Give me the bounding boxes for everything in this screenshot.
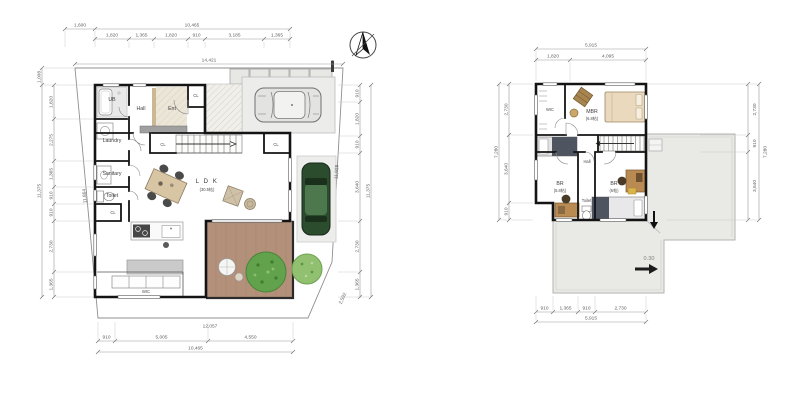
room-label-closet-south: CL [110,210,116,215]
dim-right-sub: 3,640 [355,181,361,193]
dim-left-total: 11,375 [37,184,43,199]
dim-right-sub: 910 [355,89,361,97]
dim2-top-sub: 4,095 [602,54,614,60]
dim-site-bottom: 12,057 [203,324,218,330]
dim-left-offset: 1,008 [37,71,43,83]
floor-plan-canvas: UB Hall Ent CL Laundry Sanitary Toilet C… [0,0,800,410]
dim-left-sub: 2,275 [49,134,55,146]
dim-slant-left: 11,864 [81,188,88,203]
dim-right-sub: 910 [355,140,361,148]
car-green [302,163,330,235]
room-label-ent: Ent [168,106,176,112]
dim2-bottom-sub: 2,730 [614,306,626,312]
dim-left-sub: 1,365 [49,278,55,290]
dim-left-sub: 1,820 [49,96,55,108]
room-label-toilet-2f: Toilet [582,198,592,203]
toilet-2f [582,206,591,220]
desk-br1 [555,195,579,217]
room-label-ub: UB [108,97,116,103]
dim2-bottom-sub: 910 [582,306,590,312]
dim2-right-total: 7,280 [763,146,769,158]
dim-bottom-sub: 4,550 [244,335,256,341]
bed-br2 [592,197,645,219]
bed-mbr [605,92,645,122]
room-label-hall-2f: Hall [583,159,590,164]
dim-top-sub: 1,365 [135,33,147,39]
room-label-wic-2f: WIC [546,107,554,112]
dim-left-sub: 910 [49,208,55,216]
dim-top-offset: 1,600 [74,23,86,29]
dim2-bottom-sub: 910 [540,306,548,312]
entrance-step [152,88,156,130]
room-label-br2-size: (6帖) [609,187,619,193]
dim-left-sub: 1,365 [49,168,55,180]
desk-br2 [618,170,645,194]
dresser-mbr [573,87,592,106]
room-label-br2: BR [610,181,617,187]
utility-pole-icon [331,60,334,72]
north-arrow-icon [350,32,376,58]
dim-bottom-sub: 910 [102,335,110,341]
room-label-mbr-size: (6.8帖) [586,115,599,121]
stairs-1f [176,135,242,153]
room-label-closet-stair-left: CL [160,142,166,147]
washing-machine [97,123,113,139]
dim2-bottom-total: 5,915 [585,316,597,322]
tree-small [292,254,322,284]
dim-bottom-total: 10,465 [188,346,203,352]
dim-site-top: 14,421 [202,58,217,64]
dim-top-total: 10,465 [185,23,200,29]
dim-slant-right: 11,928 [334,164,341,179]
dim2-right-sub: 3,640 [752,180,758,192]
room-label-closet-stair-right: CL [273,142,279,147]
room-label-laundry: Laundry [103,138,122,144]
dim-top-sub: 3,185 [228,33,240,39]
dim2-right-sub: 910 [752,139,758,147]
car-carport [255,88,321,122]
approach-tiles [206,84,242,133]
overhang-strip [140,126,187,133]
stairs-2f [596,136,645,151]
dim2-top-total: 5,915 [585,43,597,49]
room-label-ldk-size: (30.5帖) [200,186,215,192]
dim-top-sub: 1,820 [165,33,177,39]
room-label-br1-size: (5.8帖) [554,187,567,193]
dim-right-sub: 1,365 [355,278,361,290]
dim-top-sub: 1,820 [106,33,118,39]
dim2-left-sub: 2,730 [504,103,510,115]
dim-right-sub: 2,730 [355,240,361,252]
room-label-ent-closet: CL [193,93,199,98]
room-label-sanitary: Sanitary [102,171,121,177]
dim2-bottom-sub: 1,365 [559,306,571,312]
dim-right-total: 11,375 [366,184,372,199]
dim2-left-sub: 3,640 [504,163,510,175]
wic-cabinets [112,276,180,288]
dim-bottom-sub: 5,005 [155,335,167,341]
tree-large [246,252,286,292]
roof-skylight [649,139,662,151]
dim2-left-total: 7,280 [494,146,500,158]
dim2-left-sub: 910 [504,207,510,215]
dim-top-sub: 910 [192,33,200,39]
roof-slope-label: 0.30 [644,256,655,262]
dim2-top-sub: 1,820 [547,54,559,60]
room-label-toilet: Toilet [106,193,119,199]
dim-right-sub: 1,820 [355,113,361,125]
dim-left-sub: 2,730 [49,240,55,252]
floor1-plan: UB Hall Ent CL Laundry Sanitary Toilet C… [37,23,374,355]
dim-left-sub: 910 [49,191,55,199]
floor-plan-drawing: UB Hall Ent CL Laundry Sanitary Toilet C… [0,0,800,410]
dim-top-sub: 1,365 [271,33,283,39]
room-label-ldk: L D K [196,178,219,185]
room-label-br1: BR [556,181,563,187]
room-label-mbr: MBR [586,109,598,115]
room-label-wic-1f: WIC [142,289,150,294]
dim-corner-cut: 2,592 [338,292,348,306]
basket-mbr [570,109,578,117]
floor2-plan: 0.30 [494,43,769,325]
bed-br1 [537,137,577,156]
room-label-hall: Hall [137,106,146,112]
dim2-right-sub: 2,730 [752,103,758,115]
